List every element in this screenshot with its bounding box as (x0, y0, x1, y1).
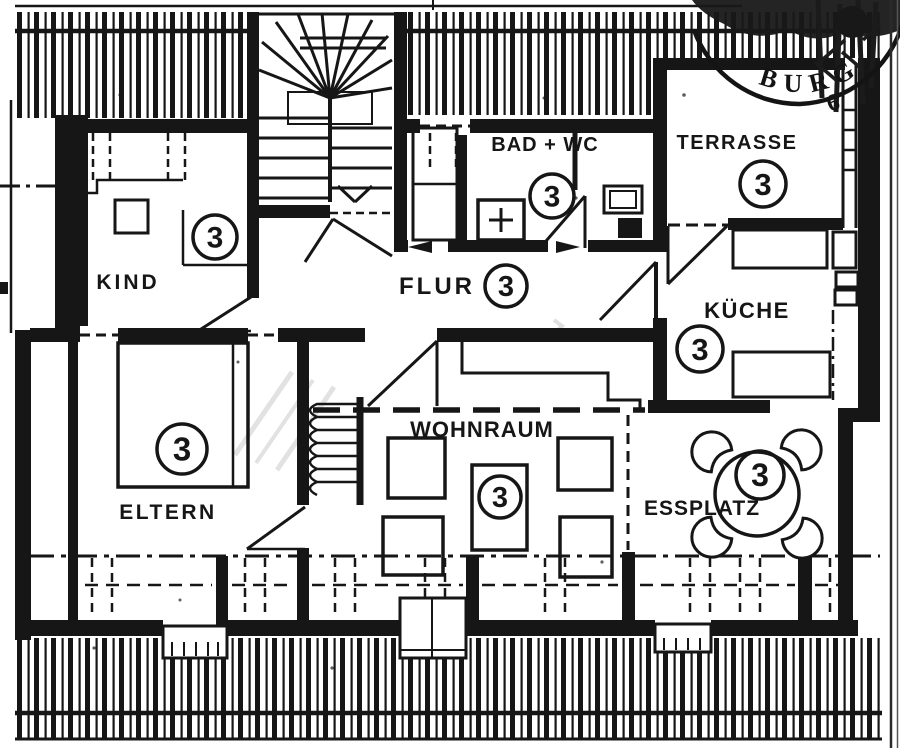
room-label-terrasse: TERRASSE (677, 132, 798, 154)
eltern-unit-number: 3 (173, 431, 191, 468)
flur-unit-number: 3 (498, 271, 514, 303)
room-label-flur: FLUR (399, 273, 475, 300)
room-label-kueche: KÜCHE (704, 298, 790, 323)
floor-plan-svg: 3 KIND 3 FLUR 3 BAD + WC 3 (0, 0, 900, 748)
room-label-kind: KIND (96, 271, 159, 294)
wohnraum-unit-number: 3 (492, 482, 508, 514)
room-label-eltern: ELTERN (119, 501, 216, 524)
room-label-wohnraum: WOHNRAUM (410, 417, 554, 442)
terrasse-unit-number: 3 (754, 167, 771, 202)
room-label-essplatz: ESSPLATZ (644, 497, 760, 520)
essplatz-unit-number: 3 (751, 457, 769, 493)
kueche-unit-number: 3 (691, 332, 708, 367)
room-label-bad-wc: BAD + WC (491, 134, 598, 156)
toilet (618, 218, 642, 238)
bad-unit-number: 3 (544, 181, 561, 214)
kind-unit-number: 3 (207, 222, 224, 255)
floorplan-scan: 3 KIND 3 FLUR 3 BAD + WC 3 (0, 0, 900, 748)
